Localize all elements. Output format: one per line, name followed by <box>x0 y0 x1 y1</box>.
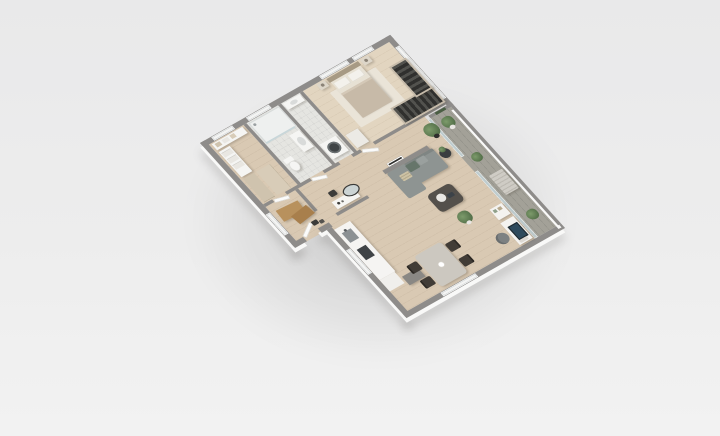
linen-stack <box>232 160 245 169</box>
storage-box <box>221 137 230 144</box>
shower-head-icon <box>253 123 257 127</box>
washer-door-icon <box>325 140 345 156</box>
lamp-icon <box>320 83 325 87</box>
faucet-icon <box>343 229 347 233</box>
storage-box <box>229 133 237 139</box>
decor-books <box>446 192 455 199</box>
storage-box <box>214 141 222 147</box>
perfume-bottle <box>336 201 340 205</box>
shelf-items <box>493 209 498 213</box>
lamp-icon <box>363 58 368 62</box>
floorplan-scene <box>0 0 720 436</box>
shelf-items <box>497 206 503 211</box>
table-plate <box>436 261 446 269</box>
wc-sink-basin <box>289 98 299 105</box>
perfume-bottle <box>341 200 345 203</box>
